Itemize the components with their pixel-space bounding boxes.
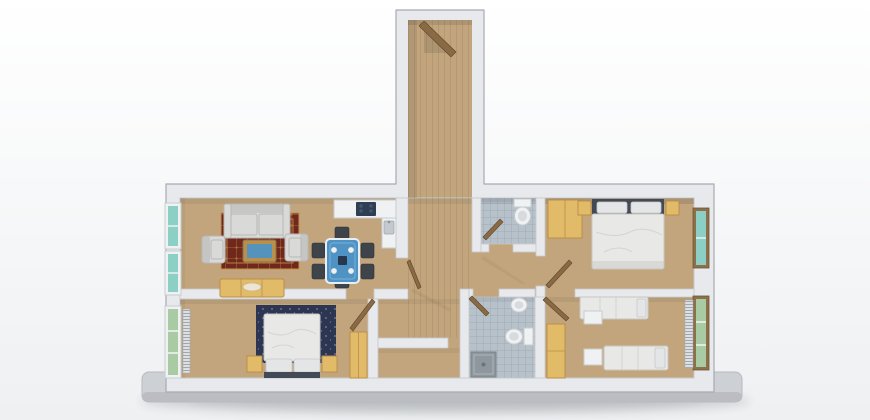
kitchen-sink-unit (382, 218, 396, 248)
pillow (655, 348, 665, 368)
pillow (631, 202, 661, 213)
dining-chair (312, 243, 325, 258)
living-window-bottom (165, 251, 181, 295)
room-wc: Guest WC with toilet (514, 199, 531, 225)
plate (348, 268, 353, 273)
shower (471, 352, 496, 377)
dining-chair (335, 227, 349, 239)
master-wardrobe (548, 200, 582, 238)
wardrobe (350, 332, 367, 378)
washbasin (511, 298, 527, 312)
dining-chair (361, 243, 374, 258)
pillow (294, 359, 320, 372)
sideboard (220, 279, 284, 297)
nightstand-left (578, 201, 591, 215)
double-bed (592, 199, 664, 269)
coffee-table (243, 240, 276, 262)
plate (331, 268, 336, 273)
single-bed-bottom (604, 346, 668, 370)
dining-chair (312, 264, 325, 279)
table-centerpiece (338, 256, 347, 265)
cooktop (356, 202, 376, 216)
nightstand-right (322, 356, 337, 372)
nightstand-left (247, 356, 262, 372)
floorplan-render: Entrance hall with open front door Guest… (0, 0, 870, 420)
wardrobe (547, 324, 565, 378)
dining-chair (361, 264, 374, 279)
nightstand-bottom (584, 349, 602, 365)
living-window-top (165, 203, 181, 249)
twin-bedroom-window (693, 296, 709, 370)
nightstand-top (584, 311, 602, 324)
plate (331, 247, 336, 252)
armchair-right (285, 234, 308, 261)
master-bedroom-window (693, 208, 709, 268)
plate (348, 247, 353, 252)
armchair-left (202, 236, 225, 263)
pillow (637, 299, 646, 317)
wc-toilet (514, 199, 531, 225)
kitchen-counter (334, 200, 396, 218)
second-bedroom-window (165, 306, 181, 378)
pillow (266, 359, 292, 372)
radiator-right (685, 300, 693, 368)
pillow (597, 202, 627, 213)
faucet (388, 221, 391, 224)
sofa (224, 204, 290, 238)
radiator-left (183, 309, 190, 373)
double-bed (264, 314, 320, 378)
shower-drain (482, 363, 486, 367)
toilet (506, 328, 534, 345)
nightstand-right (666, 201, 679, 215)
floorplan-svg: Entrance hall with open front door Guest… (0, 0, 870, 420)
